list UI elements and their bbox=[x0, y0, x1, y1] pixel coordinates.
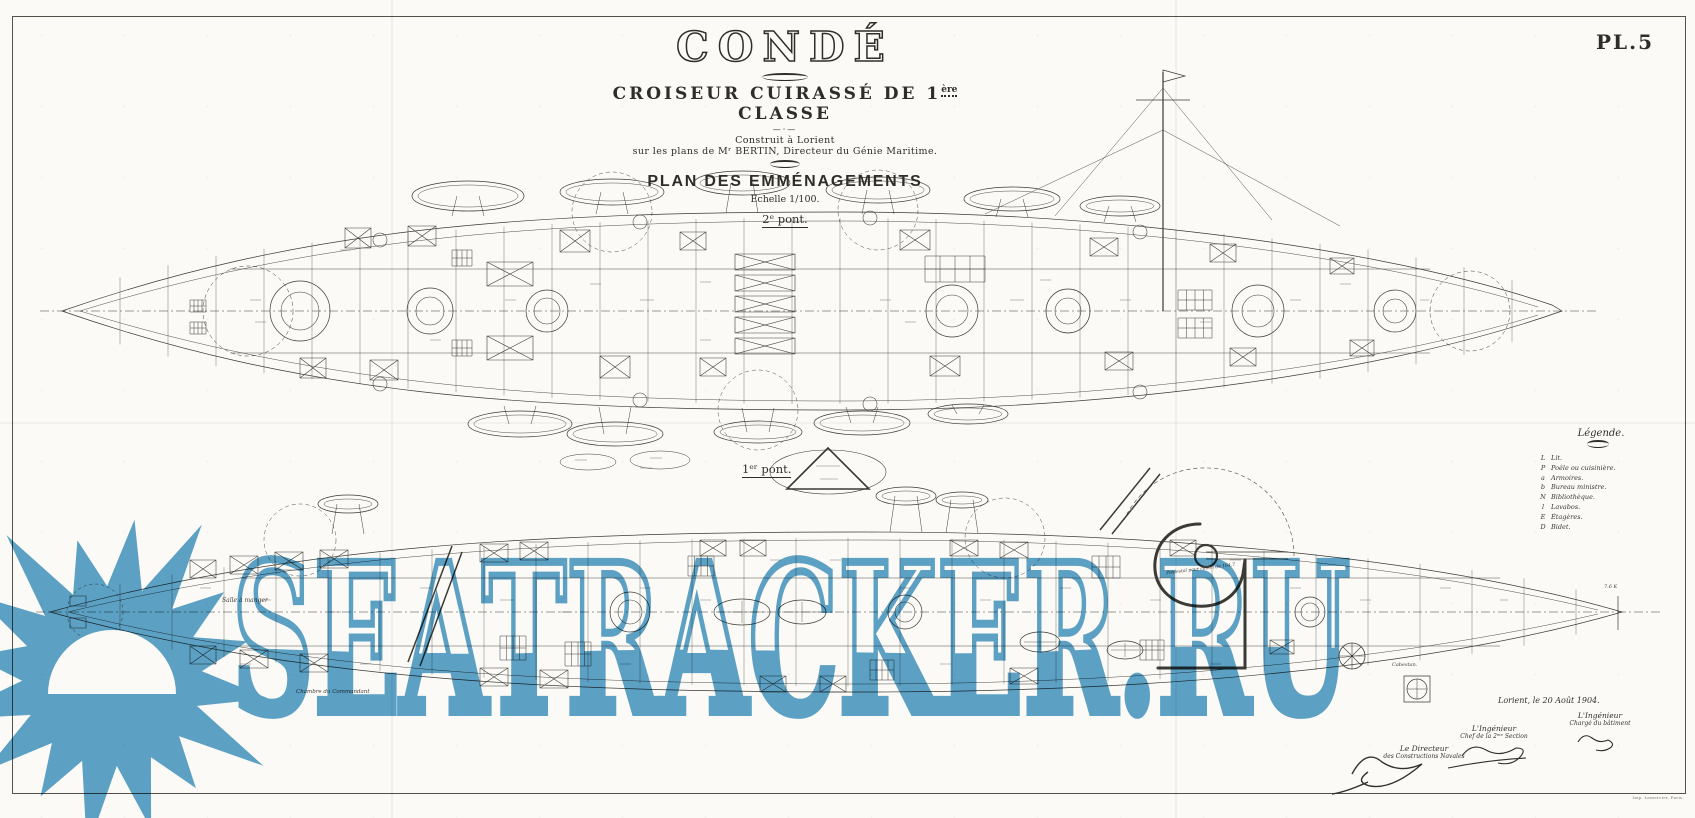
legend-label: Bidet. bbox=[1551, 523, 1571, 533]
subtitle-superscript: ère bbox=[941, 85, 957, 97]
legend-row: lLavabos. bbox=[1535, 503, 1677, 513]
legend-block: Légende. LLit. PPoêle ou cuisinière. aAr… bbox=[1535, 428, 1677, 532]
legend-key: b bbox=[1535, 483, 1551, 493]
plate-number: PL.5 bbox=[1596, 30, 1654, 54]
legend-row: NBibliothèque. bbox=[1535, 493, 1677, 503]
plan-title: PLAN DES EMMÉNAGEMENTS bbox=[585, 173, 985, 191]
built-at-line: Construit à Lorient bbox=[585, 135, 985, 146]
first-deck-label: 1ᵉʳ pont. bbox=[742, 462, 791, 478]
legend-label: Bibliothèque. bbox=[1551, 493, 1595, 503]
divider-flourish bbox=[770, 160, 800, 168]
legend-label: Lit. bbox=[1551, 454, 1562, 464]
legend-row: DBidet. bbox=[1535, 523, 1677, 533]
subtitle-text: CROISEUR CUIRASSÉ DE 1 bbox=[613, 84, 942, 104]
height-mark: 7.6 K bbox=[1604, 584, 1617, 590]
blueprint-sheet: CONDÉ CROISEUR CUIRASSÉ DE 1ère CLASSE —… bbox=[0, 0, 1695, 818]
legend-row: EÉtagères. bbox=[1535, 513, 1677, 523]
engineer-subtitle: Chargé du bâtiment bbox=[1552, 720, 1648, 727]
room-label-salle-a-manger: Salle à manger bbox=[222, 597, 268, 604]
main-title: CONDÉ bbox=[625, 20, 945, 72]
ship-name: CONDÉ bbox=[676, 22, 894, 71]
director-title: Le Directeur bbox=[1376, 744, 1472, 753]
capstan-label: Cabestan. bbox=[1392, 662, 1417, 668]
legend-key: D bbox=[1535, 523, 1551, 533]
director-signature-block: Le Directeur des Constructions Navales bbox=[1376, 744, 1472, 760]
legend-flourish bbox=[1587, 440, 1609, 448]
engineer-in-charge-signature-block: L'Ingénieur Chargé du bâtiment bbox=[1552, 711, 1648, 727]
designer-line: sur les plans de Mʳ BERTIN, Directeur du… bbox=[585, 146, 985, 157]
legend-row: LLit. bbox=[1535, 454, 1677, 464]
legend-key: P bbox=[1535, 464, 1551, 474]
subtitle: CROISEUR CUIRASSÉ DE 1ère CLASSE bbox=[585, 84, 985, 124]
handwritten-signatures bbox=[1332, 736, 1613, 794]
legend-label: Lavabos. bbox=[1551, 503, 1580, 513]
engineer-title: L'Ingénieur bbox=[1552, 711, 1648, 720]
legend-title: Légende. bbox=[1553, 428, 1649, 439]
legend-label: Poêle ou cuisinière. bbox=[1551, 464, 1615, 474]
subtitle-text-end: CLASSE bbox=[738, 104, 832, 124]
legend-label: Armoires. bbox=[1551, 474, 1583, 484]
legend-label: Bureau ministre. bbox=[1551, 483, 1607, 493]
legend-key: L bbox=[1535, 454, 1551, 464]
room-label-commandant: Chambre du Commandant bbox=[296, 689, 370, 695]
engineer-subtitle: Chef de la 2ᵐᵉ Section bbox=[1444, 733, 1544, 740]
printer-imprint: Imp. Lemercier, Paris. bbox=[1528, 795, 1684, 800]
ornament-divider: —·— bbox=[585, 125, 985, 134]
engineer-title: L'Ingénieur bbox=[1444, 724, 1544, 733]
legend-key: N bbox=[1535, 493, 1551, 503]
legend-key: l bbox=[1535, 503, 1551, 513]
scale-note: Echelle 1/100. bbox=[585, 194, 985, 205]
director-subtitle: des Constructions Navales bbox=[1376, 753, 1472, 760]
legend-row: aArmoires. bbox=[1535, 474, 1677, 484]
title-flourish bbox=[762, 73, 808, 81]
legend-row: bBureau ministre. bbox=[1535, 483, 1677, 493]
legend-label: Étagères. bbox=[1551, 513, 1583, 523]
legend-row: PPoêle ou cuisinière. bbox=[1535, 464, 1677, 474]
section-chief-signature-block: L'Ingénieur Chef de la 2ᵐᵉ Section bbox=[1444, 724, 1544, 740]
title-block: CONDÉ CROISEUR CUIRASSÉ DE 1ère CLASSE —… bbox=[585, 20, 985, 228]
second-deck-label: 2ᵉ pont. bbox=[762, 212, 807, 228]
place-and-date: Lorient, le 20 Août 1904. bbox=[1498, 696, 1683, 705]
legend-key: E bbox=[1535, 513, 1551, 523]
legend-key: a bbox=[1535, 474, 1551, 484]
